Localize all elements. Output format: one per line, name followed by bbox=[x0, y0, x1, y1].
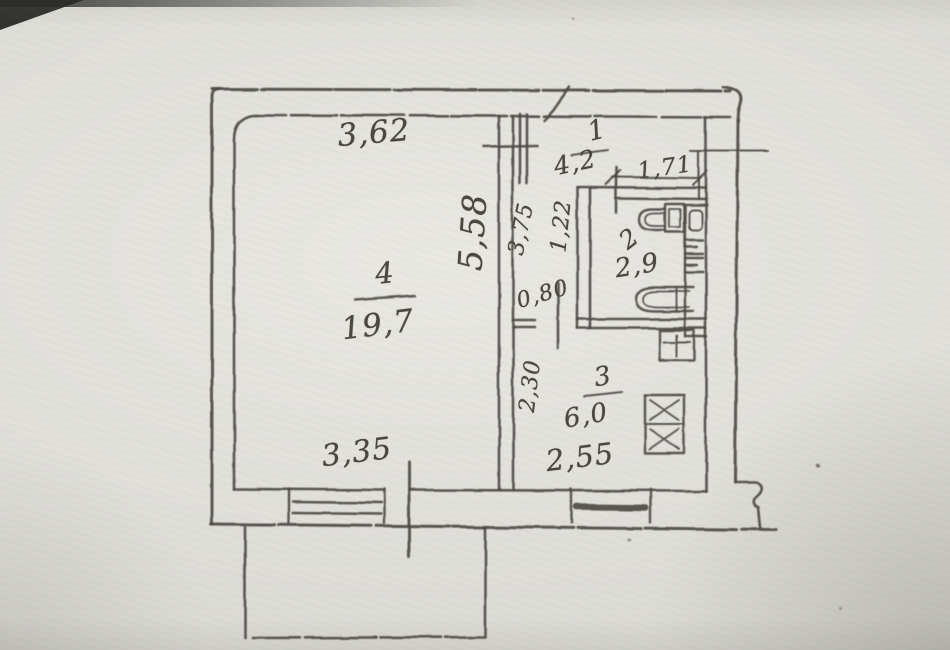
dim-living-depth: 5,58 bbox=[450, 181, 497, 284]
floor-plan-linework bbox=[0, 0, 950, 650]
floor-plan-scan: 3,62 1 4,2 1,71 5,58 3,75 1,22 0,80 2 2,… bbox=[0, 0, 950, 650]
windows bbox=[289, 489, 650, 523]
bathtub bbox=[685, 205, 707, 336]
fraction-bar-living bbox=[355, 296, 415, 300]
balcony bbox=[245, 527, 485, 638]
column-tick bbox=[484, 146, 537, 147]
kitchen-window bbox=[571, 489, 650, 523]
kitchen-sink bbox=[660, 330, 694, 360]
wall-break-bottom-right bbox=[735, 483, 762, 528]
stove bbox=[645, 395, 684, 453]
dim-corridor-width: 1,22 bbox=[538, 189, 585, 263]
room-living-number: 4 bbox=[364, 257, 407, 290]
toilet bbox=[639, 204, 684, 232]
living-room-window bbox=[289, 489, 384, 523]
fraction-bar-kitchen bbox=[584, 392, 622, 396]
room-hall-number: 1 bbox=[580, 114, 614, 147]
dim-kitchen-depth: 2,30 bbox=[507, 349, 555, 423]
